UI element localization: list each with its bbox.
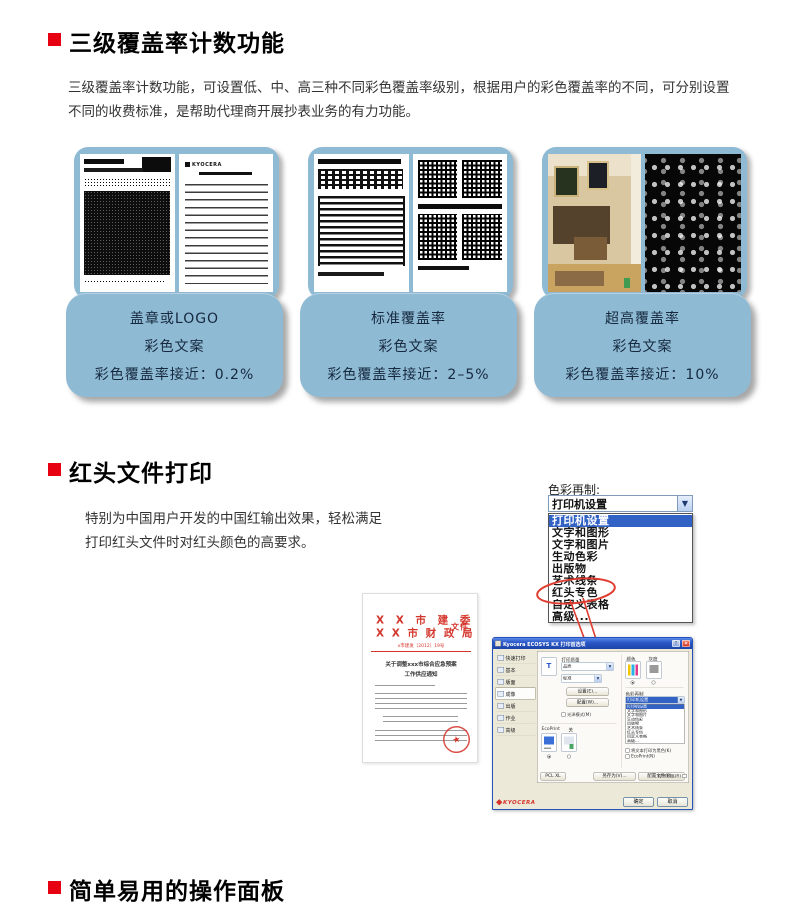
red-doc-body-lines [375, 685, 435, 690]
card-high-line2: 彩色文案 [534, 333, 751, 361]
tab-advanced[interactable]: 高级 [496, 724, 536, 736]
section2-heading: 红头文件打印 [48, 454, 213, 488]
tab-imaging[interactable]: 成像 [496, 688, 536, 700]
card-low-line2: 彩色文案 [66, 333, 283, 361]
ecoprint-off-radio[interactable] [567, 755, 571, 759]
section2-paragraph: 特别为中国用户开发的中国红输出效果，轻松满足 打印红头文件时对红头颜色的高要求。 [85, 508, 425, 555]
dialog-title-bar: Kyocera ECOSYS KX 打印首选项 ? × [493, 638, 692, 649]
close-icon[interactable]: × [682, 640, 690, 647]
ecoprint-on-radio[interactable] [547, 755, 551, 759]
card-standard-line2: 彩色文案 [300, 333, 517, 361]
ecoprint-label: EcoPrint [542, 727, 560, 732]
printer-driver-dialog-screenshot: Kyocera ECOSYS KX 打印首选项 ? × 快速打印 基本 版面 成… [492, 637, 693, 810]
color-repro-combobox[interactable]: 打印机设置 ▼ [548, 495, 693, 512]
configure-button[interactable]: 配置(W)... [567, 699, 609, 708]
tab-quick-print[interactable]: 快速打印 [496, 652, 536, 664]
dropdown-item-text-photos[interactable]: 文字和图片 [549, 539, 692, 551]
chevron-down-icon[interactable]: ▼ [595, 675, 602, 682]
halftone-document-thumbnail [80, 154, 175, 292]
tab-icon [498, 703, 505, 709]
dropdown-item-custom-table[interactable]: 自定义表格 [549, 599, 692, 611]
red-doc-body-lines [375, 693, 467, 713]
color-radio[interactable] [631, 681, 635, 685]
card-high-line1: 超高覆盖率 [534, 305, 751, 333]
chevron-down-icon[interactable]: ▼ [607, 663, 614, 670]
quality-combobox[interactable]: 品质▼ [562, 663, 614, 671]
card-standard-line3: 彩色覆盖率接近：2–5% [300, 361, 517, 389]
red-doc-title-line2: 工作供应通知 [363, 670, 478, 678]
card-standard-label: 标准覆盖率 彩色文案 彩色覆盖率接近：2–5% [300, 293, 517, 397]
section1-title: 三级覆盖率计数功能 [69, 24, 285, 58]
mini-dropdown-list: 打印机设置 文字和图形 文字和图片 生动色彩 出版物 艺术线条 红头专色 自定义… [626, 704, 685, 744]
dense-form-document-thumbnail [413, 154, 508, 292]
dropdown-item-vivid-colors[interactable]: 生动色彩 [549, 551, 692, 563]
dropdown-item-printer-settings[interactable]: 打印机设置 [549, 515, 692, 527]
dropdown-item-line-art[interactable]: 艺术线条 [549, 575, 692, 587]
dropdown-item-advanced[interactable]: 高级... [549, 611, 692, 623]
section1-heading: 三级覆盖率计数功能 [48, 24, 285, 58]
checkbox-icon[interactable] [683, 774, 687, 778]
color-repro-selected-value: 打印机设置 [549, 496, 677, 512]
ecoprint-checkbox[interactable]: EcoPrint(N) [626, 754, 655, 759]
red-doc-title-line1: 关于调整xxx市综合应急预案 [363, 660, 478, 668]
mini-color-repro-combobox[interactable]: 打印机设置 ▼ [626, 697, 685, 704]
kyocera-logo-text: KYOCERA [192, 162, 222, 168]
dialog-title-text: Kyocera ECOSYS KX 打印首选项 [503, 640, 670, 648]
card-low-images: KYOCERA [74, 147, 279, 299]
black-text-checkbox[interactable]: 将文本打印为黑色(K) [626, 748, 672, 754]
coverage-cards: KYOCERA 盖章或LOGO 彩色文案 彩色覆盖率接近：0.2% [66, 147, 751, 397]
color-repro-dropdown-list: 打印机设置 文字和图形 文字和图片 生动色彩 出版物 艺术线条 红头专色 自定义… [548, 513, 693, 623]
help-icon[interactable]: ? [672, 640, 680, 647]
section3-heading: 简单易用的操作面板 [48, 872, 285, 906]
red-doc-number: x市建发〔2012〕19号 [363, 642, 478, 649]
kyocera-logo-icon [185, 162, 190, 167]
card-high-line3: 彩色覆盖率接近：10% [534, 361, 751, 389]
checkbox-icon[interactable] [562, 713, 566, 717]
cancel-button[interactable]: 取消 [657, 798, 688, 807]
dropdown-item-red-header-color[interactable]: 红头专色 [549, 587, 692, 599]
red-doc-body-lines [383, 716, 458, 726]
card-low-label: 盖章或LOGO 彩色文案 彩色覆盖率接近：0.2% [66, 293, 283, 397]
tab-icon [498, 679, 505, 685]
ok-button[interactable]: 确定 [623, 798, 654, 807]
dropdown-item-publications[interactable]: 出版物 [549, 563, 692, 575]
checkbox-icon[interactable] [626, 749, 630, 753]
dialog-tab-list: 快速打印 基本 版面 成像 出版 作业 高级 [494, 649, 537, 785]
print-preview-checkbox[interactable]: 打印预览(R) [658, 773, 687, 779]
ecoprint-on-icon[interactable] [542, 734, 557, 752]
grayscale-radio[interactable] [652, 681, 656, 685]
tab-basic[interactable]: 基本 [496, 664, 536, 676]
mini-list-item[interactable]: 高级... [626, 739, 684, 743]
card-low-line3: 彩色覆盖率接近：0.2% [66, 361, 283, 389]
ecoprint-off-icon[interactable] [562, 734, 577, 752]
kyocera-logo: KYOCERA [497, 799, 536, 806]
settings-button[interactable]: 设置(E)... [567, 688, 609, 697]
chevron-down-icon[interactable]: ▼ [678, 697, 685, 703]
red-square-bullet-icon [48, 881, 61, 894]
ecoprint-off-label: 关 [569, 727, 574, 734]
card-low-coverage: KYOCERA 盖章或LOGO 彩色文案 彩色覆盖率接近：0.2% [66, 147, 283, 397]
black-page-thumbnail [645, 154, 741, 292]
pcl-button[interactable]: PCL XL [541, 772, 566, 781]
save-as-button[interactable]: 另存为(V)... [594, 772, 636, 781]
tab-icon [498, 715, 505, 721]
red-square-bullet-icon [48, 463, 61, 476]
dialog-content-panel: T 打印质量 品质▼ 标准▼ 设置(E)... 配置(W)... 光泽模式(M) [537, 651, 689, 783]
red-seal-stamp-icon: ★ [440, 723, 472, 755]
red-header-document-preview: X X 市 建 委 X X 市 财 政 局 文件 x市建发〔2012〕19号 关… [362, 593, 478, 763]
section2-paragraph-line1: 特别为中国用户开发的中国红输出效果，轻松满足 [85, 508, 425, 532]
tab-icon [498, 655, 505, 661]
page: 三级覆盖率计数功能 三级覆盖率计数功能，可设置低、中、高三种不同彩色覆盖率级别，… [0, 0, 790, 918]
section2-paragraph-line2: 打印红头文件时对红头颜色的高要求。 [85, 532, 425, 556]
red-doc-header-suffix: 文件 [451, 620, 469, 632]
dialog-app-icon [495, 641, 501, 647]
card-low-line1: 盖章或LOGO [66, 305, 283, 333]
tab-job[interactable]: 作业 [496, 712, 536, 724]
section3-title: 简单易用的操作面板 [69, 872, 285, 906]
color-mode-icon[interactable] [626, 662, 641, 679]
text-document-thumbnail: KYOCERA [179, 154, 274, 292]
tab-icon [498, 727, 505, 733]
dialog-footer: KYOCERA 确定 取消 [494, 796, 691, 808]
tab-layout[interactable]: 版面 [496, 676, 536, 688]
card-standard-images [308, 147, 513, 299]
chevron-down-icon[interactable]: ▼ [677, 496, 692, 511]
dropdown-item-text-graphics[interactable]: 文字和图形 [549, 527, 692, 539]
tab-publishing[interactable]: 出版 [496, 700, 536, 712]
card-high-images [542, 147, 747, 299]
grayscale-mode-icon[interactable] [647, 662, 662, 679]
checkbox-icon[interactable] [626, 755, 630, 759]
card-standard-line1: 标准覆盖率 [300, 305, 517, 333]
tab-icon [498, 691, 505, 697]
red-square-bullet-icon [48, 33, 61, 46]
kyocera-mark-icon [496, 799, 502, 805]
font-page-icon: T [542, 658, 557, 676]
mode-combobox[interactable]: 标准▼ [562, 675, 602, 683]
form-document-thumbnail [314, 154, 409, 292]
section2-title: 红头文件打印 [69, 454, 213, 488]
red-doc-rule [371, 651, 471, 652]
tab-icon [498, 667, 505, 673]
gloss-mode-checkbox[interactable]: 光泽模式(M) [562, 712, 591, 718]
section1-paragraph: 三级覆盖率计数功能，可设置低、中、高三种不同彩色覆盖率级别，根据用户的彩色覆盖率… [68, 77, 732, 124]
card-high-coverage: 超高覆盖率 彩色文案 彩色覆盖率接近：10% [534, 147, 751, 397]
card-standard-coverage: 标准覆盖率 彩色文案 彩色覆盖率接近：2–5% [300, 147, 517, 397]
card-high-label: 超高覆盖率 彩色文案 彩色覆盖率接近：10% [534, 293, 751, 397]
interior-photo-thumbnail [548, 154, 641, 292]
